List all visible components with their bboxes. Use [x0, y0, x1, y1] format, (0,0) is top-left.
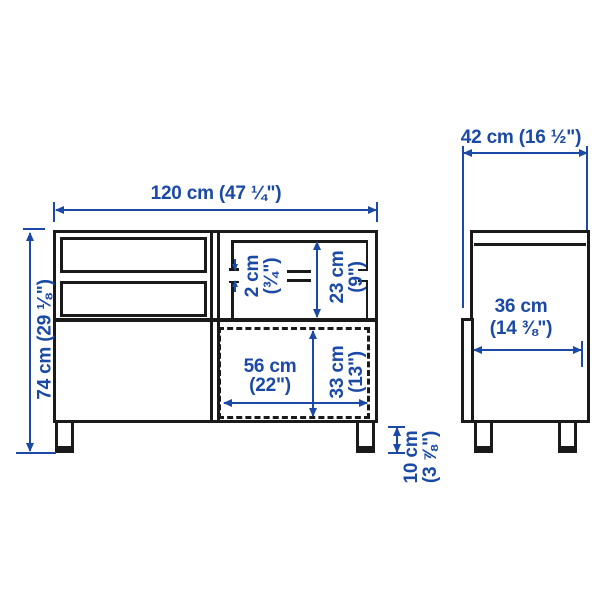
side-depth-ext-line-right [586, 146, 588, 230]
opening-width-label-line1: 56 cm [222, 357, 318, 376]
shelf-gap-arrow-lower [234, 281, 236, 292]
shelf-gap-label-line2: (¾") [262, 250, 281, 302]
opening-width-label-line2: (22") [222, 376, 318, 395]
leg-height-label: 10 cm (3 ⅞") [402, 427, 440, 487]
front-height-label: 74 cm (29 ⅛") [36, 265, 55, 415]
front-height-ext-tick-top [23, 228, 45, 230]
front-height-ext-tick-bottom [16, 452, 56, 454]
side-depth-arrow [464, 152, 587, 154]
shelf-gap-arrow-upper [234, 259, 236, 270]
compartment-inner-top-line [231, 240, 368, 243]
side-inner-depth-arrow [474, 349, 581, 351]
side-depth-ext-line-left [462, 146, 464, 308]
front-width-ext-tick-left [53, 202, 55, 222]
opening-width-label: 56 cm (22") [222, 357, 318, 395]
leg-height-label-line2: (3 ⅞") [421, 427, 440, 487]
opening-width-arrow [224, 402, 367, 404]
side-inner-depth-label-line2: (14 ⅜") [456, 318, 586, 340]
side-inner-depth-label: 36 cm (14 ⅜") [456, 296, 586, 340]
leg-height-arrow [396, 428, 398, 452]
opening-height-label-line2: (13") [347, 344, 366, 400]
side-top-panel-line [474, 243, 586, 246]
drawer-front-top [60, 237, 207, 273]
shelf-edge-line-bottom [287, 279, 311, 282]
compartment-height-label: 23 cm (9") [328, 249, 366, 305]
compartment-height-arrow [316, 242, 318, 317]
leg-height-label-line1: 10 cm [402, 427, 421, 487]
compartment-height-label-line1: 23 cm [328, 249, 347, 305]
side-inner-depth-ext-tick [581, 341, 583, 367]
drawer-front-bottom [60, 281, 207, 317]
dimension-diagram: 120 cm (47 ¼") 74 cm (29 ⅛") 2 cm (¾") 2… [0, 0, 600, 600]
opening-height-label: 33 cm (13") [328, 344, 366, 400]
front-section-separator-line [56, 318, 375, 322]
front-width-label: 120 cm (47 ¼") [66, 184, 366, 203]
shelf-gap-label-line1: 2 cm [243, 250, 262, 302]
front-width-ext-tick-right [376, 202, 378, 222]
side-inner-depth-label-line1: 36 cm [456, 296, 586, 318]
side-depth-label: 42 cm (16 ½") [426, 128, 600, 147]
side-leg-right [558, 423, 577, 453]
shelf-gap-label: 2 cm (¾") [243, 250, 281, 302]
compartment-height-label-line2: (9") [347, 249, 366, 305]
front-center-divider-line-left [210, 233, 213, 420]
shelf-edge-line-top [287, 270, 311, 273]
opening-height-label-line1: 33 cm [328, 344, 347, 400]
front-leg-right [356, 423, 375, 453]
front-leg-left [55, 423, 74, 453]
side-leg-left [474, 423, 493, 453]
opening-height-arrow [312, 331, 314, 416]
front-height-arrow [29, 233, 31, 451]
front-width-arrow [56, 209, 376, 211]
